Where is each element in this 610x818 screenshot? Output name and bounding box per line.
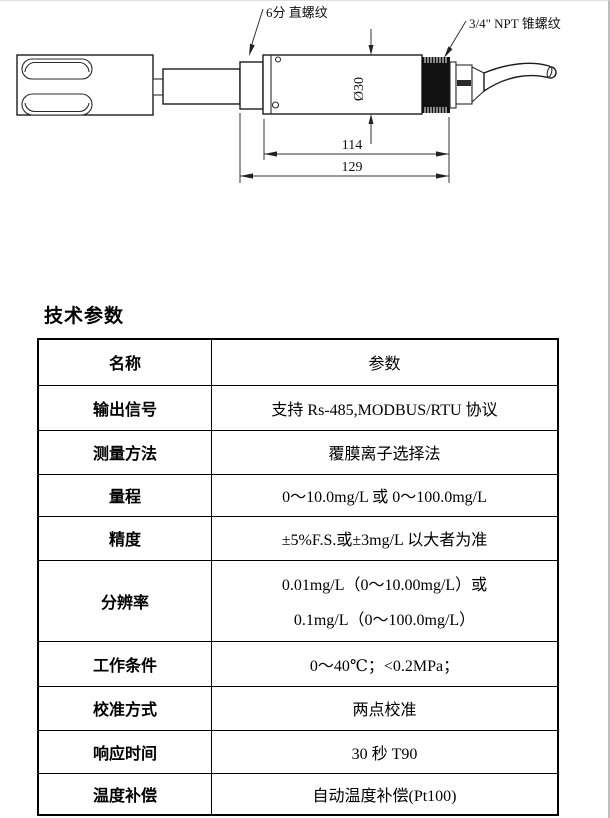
row-label: 量程	[38, 474, 212, 516]
datasheet-page: Ø30 114 129	[0, 0, 610, 818]
row-value: 30 秒 T90	[212, 730, 559, 773]
table-row: 温度补偿 自动温度补偿(Pt100)	[38, 773, 558, 815]
sensor-diagram: Ø30 114 129	[0, 1, 610, 211]
probe-stem	[153, 69, 240, 104]
table-row: 分辨率 0.01mg/L（0～10.00mg/L）或 0.1mg/L（0～100…	[38, 560, 558, 641]
spec-table: 名称 参数 输出信号 支持 Rs-485,MODBUS/RTU 协议 测量方法 …	[37, 338, 559, 816]
protective-cap	[17, 55, 153, 115]
row-label: 测量方法	[38, 430, 212, 474]
table-row: 输出信号 支持 Rs-485,MODBUS/RTU 协议	[38, 385, 558, 430]
table-row: 量程 0～10.0mg/L 或 0～100.0mg/L	[38, 474, 558, 516]
dim-diameter-text: Ø30	[352, 77, 367, 101]
row-label: 工作条件	[38, 641, 212, 686]
section-title: 技术参数	[44, 301, 124, 328]
row-value: ±5%F.S.或±3mg/L 以大者为准	[212, 516, 559, 560]
npt-thread-section	[422, 57, 450, 113]
row-label: 校准方式	[38, 686, 212, 730]
table-row: 响应时间 30 秒 T90	[38, 730, 558, 773]
row-label: 输出信号	[38, 385, 212, 430]
row-value: 两点校准	[212, 686, 559, 730]
row-value: 覆膜离子选择法	[212, 430, 559, 474]
table-row: 精度 ±5%F.S.或±3mg/L 以大者为准	[38, 516, 558, 560]
row-value: 0.01mg/L（0～10.00mg/L）或 0.1mg/L（0～100.0mg…	[212, 560, 559, 641]
row-value-line2: 0.1mg/L（0～100.0mg/L）	[212, 606, 557, 630]
header-param-cell: 参数	[212, 339, 559, 385]
cable-gland	[450, 62, 484, 108]
row-value: 自动温度补偿(Pt100)	[212, 773, 559, 815]
row-label: 分辨率	[38, 560, 212, 641]
leader-straight-thread: 6分 直螺纹	[249, 5, 328, 56]
row-label: 精度	[38, 516, 212, 560]
sensor-body	[263, 55, 422, 114]
row-label: 温度补偿	[38, 773, 212, 815]
row-value: 支持 Rs-485,MODBUS/RTU 协议	[212, 385, 559, 430]
dim-129-text: 129	[342, 160, 363, 175]
leader-npt-thread: 3/4" NPT 锥螺纹	[444, 16, 561, 58]
cable	[484, 63, 556, 91]
row-value: 0～40℃；<0.2MPa；	[212, 641, 559, 686]
row-value-line1: 0.01mg/L（0～10.00mg/L）或	[212, 571, 557, 595]
dim-114-text: 114	[342, 138, 362, 153]
table-header-row: 名称 参数	[38, 339, 558, 385]
label-npt-thread: 3/4" NPT 锥螺纹	[469, 16, 561, 31]
straight-thread-collar	[240, 62, 263, 109]
label-straight-thread: 6分 直螺纹	[266, 5, 328, 20]
table-row: 校准方式 两点校准	[38, 686, 558, 730]
header-name-cell: 名称	[38, 339, 212, 385]
row-value: 0～10.0mg/L 或 0～100.0mg/L	[212, 474, 559, 516]
row-label: 响应时间	[38, 730, 212, 773]
table-row: 工作条件 0～40℃；<0.2MPa；	[38, 641, 558, 686]
table-row: 测量方法 覆膜离子选择法	[38, 430, 558, 474]
